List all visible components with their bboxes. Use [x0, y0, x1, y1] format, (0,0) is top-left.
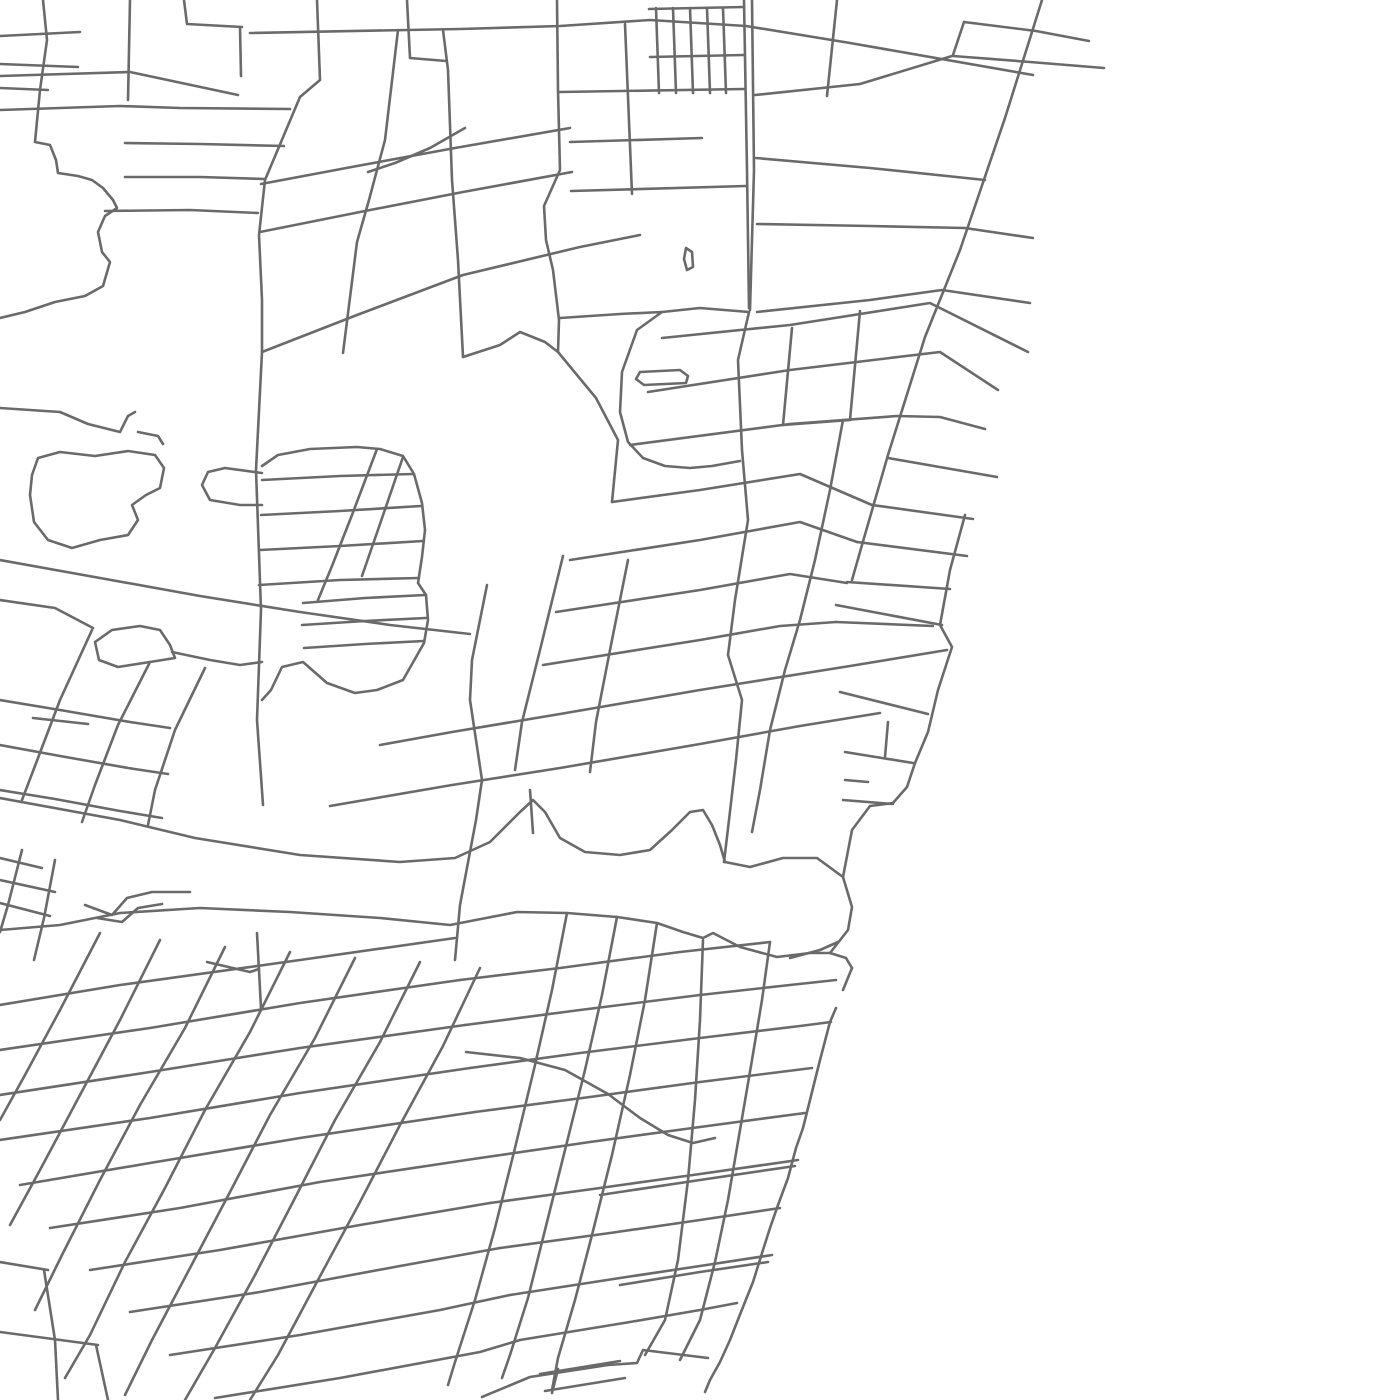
- road-p-v1: [0, 850, 22, 932]
- road-notch-1: [540, 1361, 620, 1374]
- road-blob-d1: [318, 449, 377, 600]
- road-p-h1: [0, 858, 42, 868]
- road-ib1: [262, 474, 413, 480]
- road-bc-h7: [490, 1160, 798, 1203]
- road-tr-v: [827, 0, 837, 96]
- road-tr-hook-h: [964, 22, 1089, 41]
- road-tiny-loop: [684, 248, 693, 270]
- road-artery-south: [645, 940, 703, 1355]
- road-em3: [840, 692, 928, 714]
- road-f-v3: [148, 668, 205, 825]
- road-b-v5: [707, 8, 710, 93]
- road-sb1: [303, 595, 425, 603]
- road-bc-h7b: [600, 1166, 795, 1195]
- road-b-v6: [723, 8, 726, 93]
- road-pond-tail: [172, 652, 262, 665]
- road-bc-v7: [680, 942, 770, 1360]
- road-v262: [256, 0, 320, 805]
- road-bulb: [703, 858, 852, 957]
- road-g10-stub: [530, 790, 533, 833]
- road-tl-long: [0, 72, 238, 95]
- road-tl-h3: [0, 106, 290, 110]
- street-map-canvas[interactable]: [0, 0, 1400, 1400]
- road-g4-stub: [888, 458, 997, 477]
- road-artery-mid: [724, 312, 749, 862]
- road-v397: [343, 30, 398, 353]
- road-l2: [261, 128, 570, 184]
- road-p-v2: [34, 860, 55, 960]
- road-rail-1: [744, 0, 749, 308]
- road-curvy-west: [0, 0, 117, 318]
- road-bc-h4: [470, 1022, 831, 1068]
- road-sb3: [304, 641, 424, 648]
- road-e-c4: [836, 622, 933, 626]
- road-x2: [44, 1270, 58, 1400]
- road-em4: [845, 752, 913, 763]
- road-l5: [262, 235, 640, 352]
- road-bl-h4: [0, 1068, 470, 1140]
- road-lh-b: [0, 600, 93, 628]
- road-tl-hook: [184, 0, 242, 27]
- road-e-c1: [872, 505, 973, 519]
- road-river-north-bank: [0, 798, 725, 862]
- road-bl-h10: [215, 1340, 520, 1398]
- road-ib4: [259, 578, 419, 585]
- road-bc-h2: [460, 942, 770, 980]
- road-tl-h5: [125, 177, 265, 179]
- road-tl-h6: [105, 210, 258, 213]
- road-x3: [0, 1332, 98, 1345]
- road-g2: [648, 352, 998, 392]
- road-boundary-south: [482, 1350, 708, 1397]
- road-tr-hook-v: [953, 22, 964, 55]
- road-coast-1: [843, 968, 852, 990]
- road-bc-h9: [510, 1255, 772, 1295]
- road-e-c3: [847, 582, 950, 589]
- road-g3: [630, 416, 985, 445]
- road-f-h2: [0, 745, 168, 774]
- road-l3: [260, 172, 572, 232]
- road-b-v1: [625, 24, 632, 194]
- road-tl-v2: [240, 27, 241, 76]
- road-blob-wavy-link: [463, 332, 558, 357]
- road-bl-v4: [65, 952, 290, 1378]
- road-tr-h4: [757, 224, 1033, 238]
- road-v-mid1: [783, 328, 792, 425]
- road-pond: [95, 626, 175, 667]
- road-bc-h10: [520, 1303, 737, 1340]
- road-v-left: [455, 585, 487, 960]
- road-rail-2: [750, 0, 754, 310]
- road-bl-h8: [130, 1248, 500, 1312]
- road-bulb-corner: [830, 953, 852, 968]
- road-em-v: [885, 722, 888, 757]
- road-v3-mid: [590, 560, 628, 772]
- road-b-h5: [571, 186, 746, 191]
- road-finger: [202, 468, 262, 505]
- road-v5-east: [752, 420, 843, 832]
- road-tr-h2: [755, 56, 952, 95]
- road-bl-h5: [20, 1112, 475, 1185]
- road-connector: [558, 352, 618, 502]
- road-b-h4: [570, 138, 702, 142]
- road-tl-h1: [0, 32, 80, 36]
- road-ib2: [261, 506, 421, 515]
- road-b-h2: [650, 55, 744, 57]
- road-b-v4: [690, 8, 693, 93]
- road-f-v2: [82, 662, 150, 822]
- road-e-c2: [857, 542, 967, 556]
- road-tl-h4: [125, 143, 284, 146]
- road-f-stub: [33, 718, 88, 724]
- road-b-h3: [560, 89, 744, 92]
- road-bl-v1: [0, 933, 100, 1120]
- road-coast-2: [705, 1008, 836, 1392]
- road-bl-v7: [250, 968, 480, 1400]
- road-notch-2: [545, 1378, 625, 1391]
- map-viewport: [0, 0, 1400, 1400]
- road-tl-h2: [0, 64, 78, 67]
- road-tl-v1: [128, 0, 130, 100]
- road-v-mid2: [850, 311, 860, 420]
- road-x1: [0, 1262, 48, 1270]
- road-bl-v5: [125, 958, 355, 1395]
- road-b-h1: [649, 7, 744, 9]
- road-lake: [30, 451, 164, 548]
- road-knot-road: [560, 312, 662, 318]
- road-sq-a: [0, 408, 135, 432]
- road-sq-b: [138, 432, 163, 444]
- road-stadium: [636, 370, 688, 385]
- road-g6: [570, 522, 857, 560]
- road-tr-h3: [756, 158, 985, 180]
- road-blob-outline: [262, 447, 428, 700]
- road-p-h2: [0, 880, 55, 892]
- road-em-bottom: [843, 800, 893, 804]
- road-x4: [96, 1345, 108, 1400]
- road-g10: [330, 713, 880, 806]
- road-em-stub: [845, 780, 868, 782]
- road-bc-h3: [465, 980, 836, 1025]
